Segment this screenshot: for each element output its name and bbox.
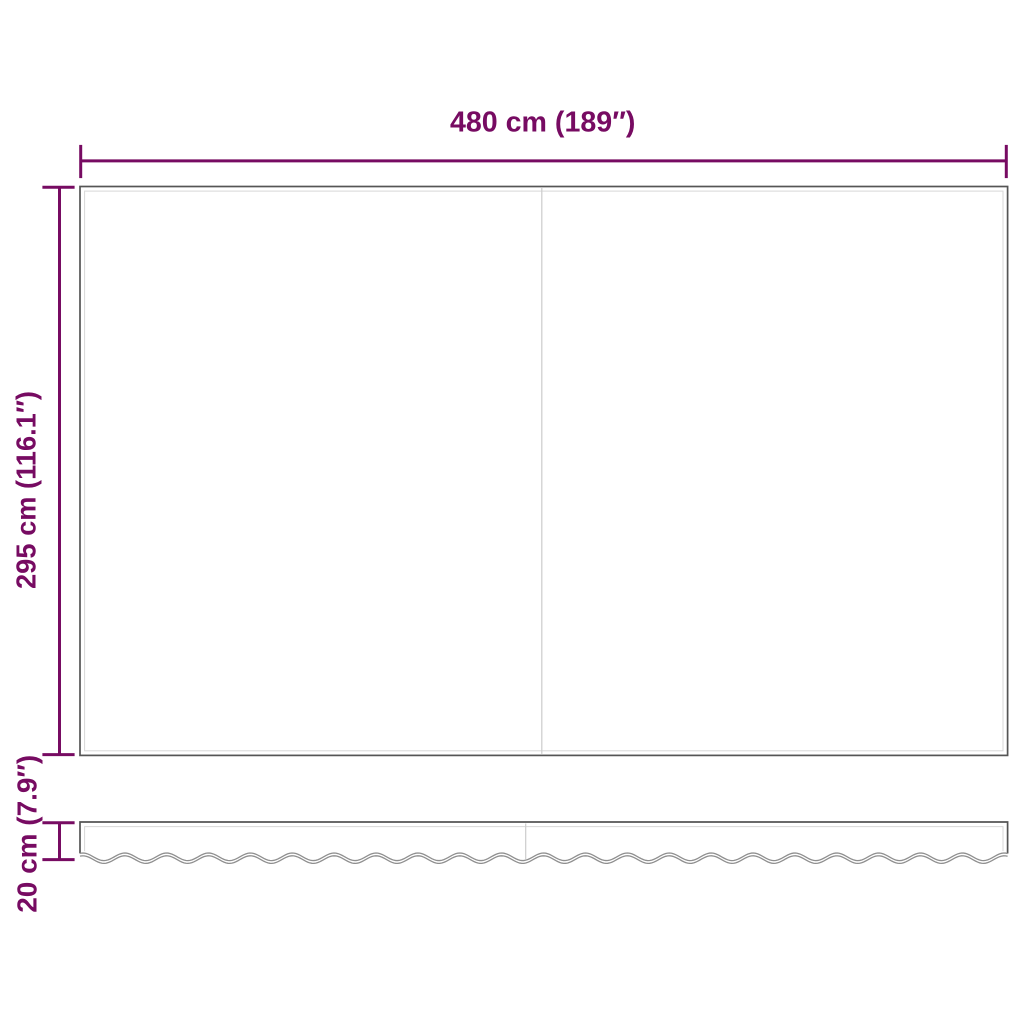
svg-text:20 cm (7.9″): 20 cm (7.9″)	[11, 755, 43, 913]
svg-text:295 cm (116.1″): 295 cm (116.1″)	[10, 391, 42, 589]
svg-text:480 cm (189″): 480 cm (189″)	[450, 107, 636, 139]
